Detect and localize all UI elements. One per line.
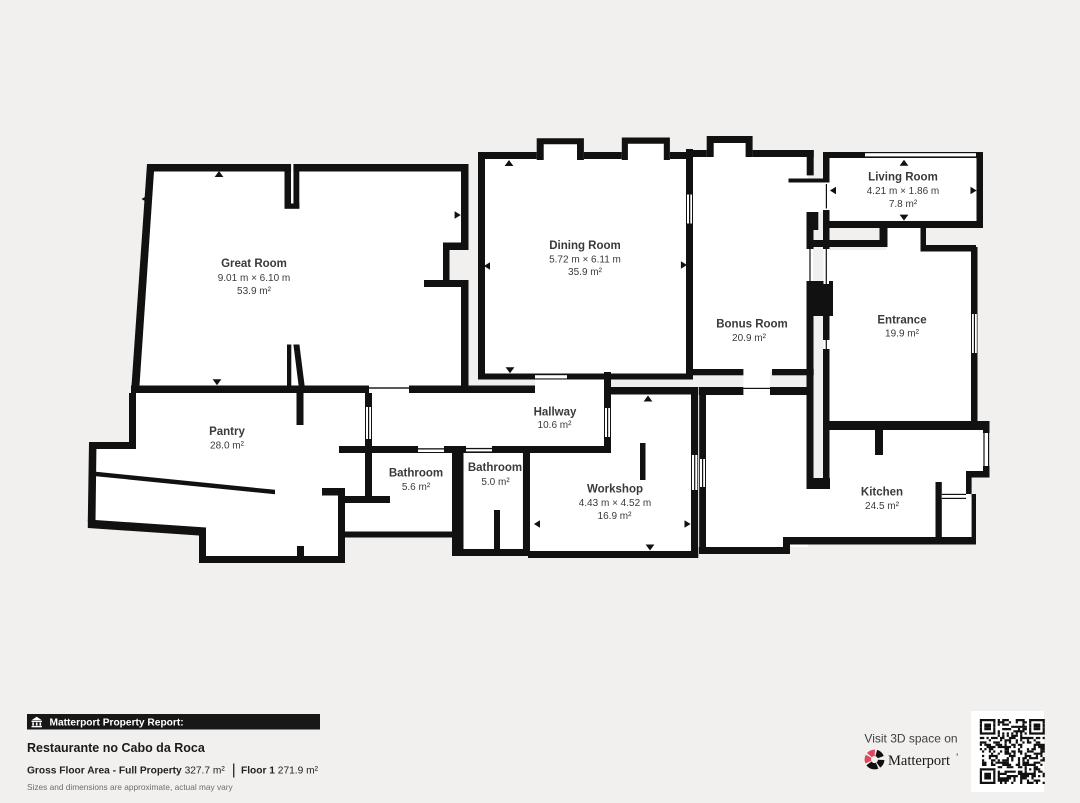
svg-text:5.6 m²: 5.6 m² (402, 482, 431, 493)
svg-text:Kitchen: Kitchen (861, 487, 903, 499)
svg-text:9.01 m × 6.10 m: 9.01 m × 6.10 m (218, 273, 291, 284)
svg-text:Entrance: Entrance (877, 315, 926, 327)
svg-text:Living Room: Living Room (868, 172, 938, 184)
svg-text:5.72 m × 6.11 m: 5.72 m × 6.11 m (549, 255, 621, 266)
svg-text:’: ’ (956, 752, 959, 762)
svg-text:24.5 m²: 24.5 m² (865, 501, 900, 512)
svg-text:Hallway: Hallway (534, 407, 577, 419)
svg-text:Bonus Room: Bonus Room (716, 319, 788, 331)
svg-text:19.9 m²: 19.9 m² (885, 329, 920, 340)
svg-text:10.6 m²: 10.6 m² (538, 420, 573, 431)
svg-text:Great Room: Great Room (221, 258, 287, 270)
svg-text:53.9 m²: 53.9 m² (237, 286, 272, 297)
svg-text:Floor 1 271.9 m²: Floor 1 271.9 m² (241, 766, 319, 777)
svg-text:Gross Floor Area - Full Proper: Gross Floor Area - Full Property 327.7 m… (27, 766, 225, 777)
svg-text:35.9 m²: 35.9 m² (568, 267, 603, 278)
svg-text:Bathroom: Bathroom (468, 462, 522, 474)
svg-text:20.9 m²: 20.9 m² (732, 333, 767, 344)
svg-text:Dining Room: Dining Room (549, 240, 621, 252)
svg-text:Bathroom: Bathroom (389, 468, 443, 480)
svg-text:Workshop: Workshop (587, 484, 643, 496)
svg-text:4.43 m × 4.52 m: 4.43 m × 4.52 m (579, 498, 652, 509)
svg-text:7.8 m²: 7.8 m² (889, 199, 918, 210)
svg-text:Restaurante no Cabo da Roca: Restaurante no Cabo da Roca (27, 741, 206, 755)
svg-text:28.0 m²: 28.0 m² (210, 441, 245, 452)
svg-text:Pantry: Pantry (209, 426, 245, 438)
svg-text:Visit 3D space on: Visit 3D space on (864, 732, 957, 746)
svg-text:4.21 m × 1.86 m: 4.21 m × 1.86 m (867, 186, 940, 197)
svg-text:Matterport Property Report:: Matterport Property Report: (50, 718, 184, 729)
svg-text:16.9 m²: 16.9 m² (598, 511, 633, 522)
svg-text:Sizes and dimensions are appro: Sizes and dimensions are approximate, ac… (27, 782, 234, 792)
svg-text:Matterport: Matterport (888, 753, 950, 769)
svg-text:5.0 m²: 5.0 m² (481, 477, 510, 488)
